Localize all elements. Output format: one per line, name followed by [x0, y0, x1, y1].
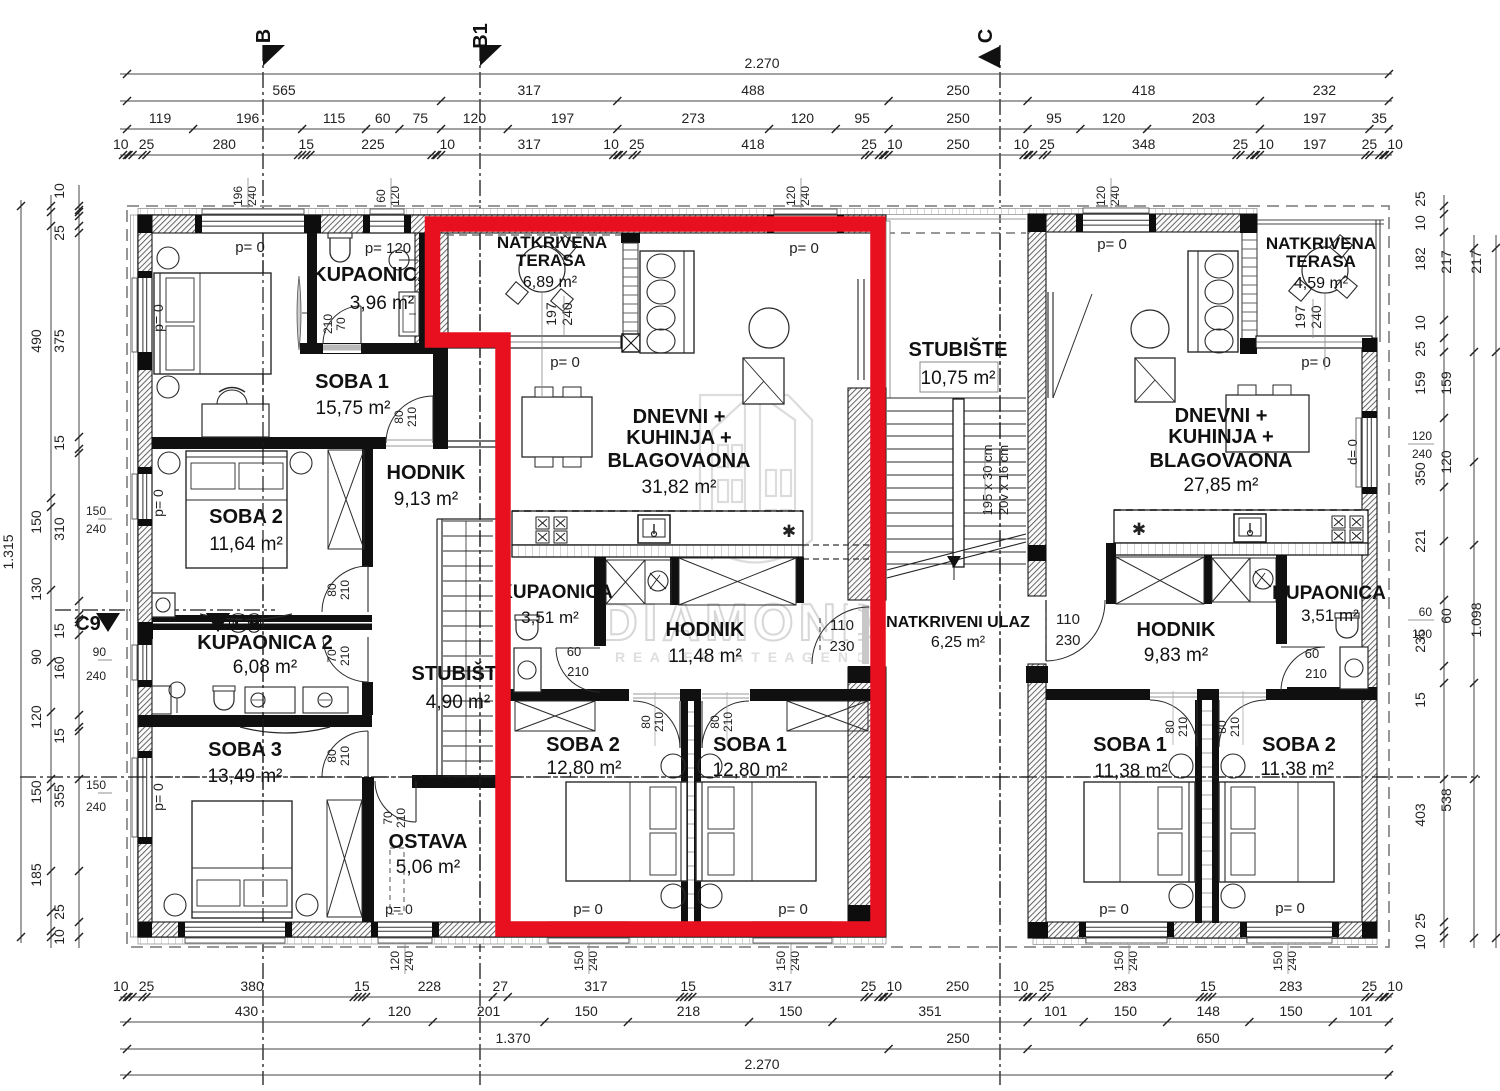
- svg-text:210: 210: [721, 712, 735, 732]
- svg-text:120: 120: [388, 1003, 412, 1019]
- svg-text:240: 240: [245, 186, 259, 206]
- svg-text:6,25 m²: 6,25 m²: [931, 634, 986, 651]
- svg-text:NATKRIVENI ULAZ: NATKRIVENI ULAZ: [886, 614, 1030, 631]
- svg-text:1.315: 1.315: [0, 534, 16, 569]
- svg-text:10: 10: [113, 978, 129, 994]
- svg-text:197: 197: [1303, 136, 1327, 152]
- svg-text:210: 210: [1228, 717, 1242, 737]
- svg-text:p= 0: p= 0: [550, 354, 580, 371]
- svg-text:95: 95: [1046, 110, 1062, 126]
- svg-text:120: 120: [1412, 429, 1432, 443]
- svg-text:196: 196: [236, 110, 260, 126]
- svg-text:10: 10: [1387, 978, 1403, 994]
- svg-text:25: 25: [1233, 136, 1249, 152]
- svg-text:230: 230: [829, 638, 854, 655]
- svg-text:150: 150: [774, 951, 788, 971]
- svg-text:240: 240: [86, 669, 106, 683]
- svg-text:15: 15: [298, 136, 314, 152]
- svg-text:217: 217: [1468, 250, 1484, 274]
- svg-text:240: 240: [1108, 186, 1122, 206]
- svg-text:10: 10: [1412, 315, 1428, 331]
- svg-text:3,51 m²: 3,51 m²: [521, 608, 579, 627]
- svg-text:15: 15: [1412, 692, 1428, 708]
- svg-text:150: 150: [28, 780, 44, 804]
- svg-text:10: 10: [886, 978, 902, 994]
- svg-text:210: 210: [405, 407, 419, 427]
- svg-text:15: 15: [354, 978, 370, 994]
- svg-text:SOBA 3: SOBA 3: [208, 739, 282, 761]
- svg-text:317: 317: [584, 978, 608, 994]
- svg-text:120: 120: [784, 186, 798, 206]
- svg-text:10: 10: [113, 136, 129, 152]
- svg-text:130: 130: [28, 577, 44, 601]
- svg-text:p= 0: p= 0: [1099, 901, 1129, 918]
- svg-text:240: 240: [86, 522, 106, 536]
- svg-text:195 x 30 cm: 195 x 30 cm: [980, 445, 995, 516]
- svg-text:283: 283: [1113, 978, 1137, 994]
- svg-text:10: 10: [440, 136, 456, 152]
- svg-text:10: 10: [887, 136, 903, 152]
- svg-text:240: 240: [798, 186, 812, 206]
- svg-text:119: 119: [149, 110, 172, 126]
- svg-text:70: 70: [334, 317, 348, 331]
- svg-text:150: 150: [1271, 951, 1285, 971]
- svg-text:10: 10: [51, 183, 67, 199]
- svg-text:27: 27: [492, 978, 508, 994]
- svg-text:KUHINJA +: KUHINJA +: [1168, 426, 1273, 448]
- svg-text:228: 228: [418, 978, 442, 994]
- svg-text:p= 0: p= 0: [150, 783, 166, 811]
- svg-text:197: 197: [1303, 110, 1327, 126]
- svg-text:210: 210: [338, 646, 352, 666]
- svg-text:2.270: 2.270: [744, 1056, 779, 1072]
- svg-text:210: 210: [652, 712, 666, 732]
- svg-text:80: 80: [325, 583, 339, 597]
- svg-text:6,89 m²: 6,89 m²: [523, 274, 578, 291]
- svg-text:75: 75: [412, 110, 428, 126]
- svg-text:SOBA 2: SOBA 2: [209, 506, 283, 528]
- svg-text:KUPAONICA: KUPAONICA: [312, 264, 432, 286]
- svg-text:80: 80: [325, 749, 339, 763]
- svg-text:15: 15: [51, 623, 67, 639]
- svg-text:3,96 m²: 3,96 m²: [350, 293, 414, 314]
- svg-text:240: 240: [559, 302, 575, 326]
- svg-text:283: 283: [1279, 978, 1303, 994]
- svg-text:120: 120: [28, 705, 44, 729]
- svg-text:120: 120: [388, 186, 402, 206]
- svg-text:418: 418: [1132, 82, 1156, 98]
- svg-text:355: 355: [51, 784, 67, 808]
- svg-text:350: 350: [1412, 462, 1428, 486]
- svg-text:150: 150: [86, 778, 106, 792]
- svg-text:60: 60: [1438, 608, 1454, 624]
- svg-text:25: 25: [1362, 978, 1378, 994]
- svg-text:p= 0: p= 0: [573, 901, 603, 918]
- svg-text:B1: B1: [470, 23, 492, 49]
- svg-text:120: 120: [791, 110, 815, 126]
- svg-text:25: 25: [51, 225, 67, 241]
- svg-text:490: 490: [28, 329, 44, 353]
- svg-text:SOBA 1: SOBA 1: [315, 371, 389, 393]
- svg-text:150: 150: [1279, 1003, 1303, 1019]
- svg-text:KUPAONICA: KUPAONICA: [1272, 583, 1386, 604]
- svg-text:10: 10: [603, 136, 619, 152]
- svg-text:240: 240: [1126, 951, 1140, 971]
- svg-text:210: 210: [394, 808, 408, 828]
- svg-text:150: 150: [1112, 951, 1126, 971]
- svg-text:317: 317: [769, 978, 793, 994]
- svg-text:25: 25: [1412, 341, 1428, 357]
- svg-text:p= 0: p= 0: [789, 240, 819, 257]
- svg-text:430: 430: [235, 1003, 259, 1019]
- svg-text:10: 10: [51, 929, 67, 945]
- svg-text:11,38 m²: 11,38 m²: [1094, 761, 1168, 782]
- svg-text:NATKRIVENA: NATKRIVENA: [497, 233, 607, 252]
- svg-text:250: 250: [946, 110, 970, 126]
- svg-text:15: 15: [1200, 978, 1216, 994]
- svg-text:240: 240: [402, 951, 416, 971]
- svg-text:STUBIŠTE: STUBIŠTE: [909, 337, 1008, 361]
- svg-text:d= 0: d= 0: [1345, 439, 1360, 465]
- svg-text:185: 185: [28, 863, 44, 887]
- svg-text:159: 159: [1438, 371, 1454, 395]
- svg-text:15: 15: [51, 435, 67, 451]
- svg-text:1.098: 1.098: [1468, 602, 1484, 637]
- svg-text:KUPAONICA 2: KUPAONICA 2: [197, 632, 333, 654]
- svg-text:217: 217: [1438, 250, 1454, 274]
- svg-text:TERASA: TERASA: [516, 251, 586, 270]
- svg-text:25: 25: [1039, 978, 1055, 994]
- svg-text:210: 210: [321, 314, 335, 334]
- svg-text:25: 25: [139, 978, 155, 994]
- svg-text:60: 60: [1305, 646, 1319, 661]
- svg-text:150: 150: [86, 504, 106, 518]
- svg-text:240: 240: [1412, 447, 1432, 461]
- svg-text:201: 201: [477, 1003, 501, 1019]
- svg-text:25: 25: [861, 136, 877, 152]
- svg-text:120: 120: [388, 951, 402, 971]
- svg-text:SOBA 2: SOBA 2: [546, 734, 620, 756]
- svg-text:25: 25: [861, 978, 877, 994]
- svg-text:✱: ✱: [1132, 520, 1146, 539]
- svg-text:210: 210: [1305, 666, 1327, 681]
- svg-text:20v x 16 cm: 20v x 16 cm: [996, 445, 1011, 515]
- svg-text:p= 0: p= 0: [150, 304, 166, 332]
- svg-text:197: 197: [551, 110, 575, 126]
- svg-text:p= 0: p= 0: [778, 901, 808, 918]
- svg-text:250: 250: [946, 82, 970, 98]
- svg-text:4,59 m²: 4,59 m²: [1294, 275, 1349, 292]
- svg-text:5,06 m²: 5,06 m²: [396, 857, 460, 878]
- svg-text:310: 310: [51, 517, 67, 541]
- svg-text:110: 110: [1056, 611, 1080, 628]
- svg-text:10: 10: [1412, 215, 1428, 231]
- svg-text:OSTAVA: OSTAVA: [389, 831, 468, 853]
- svg-text:60: 60: [567, 644, 581, 659]
- svg-text:80: 80: [392, 410, 406, 424]
- svg-text:240: 240: [1285, 951, 1299, 971]
- svg-text:197: 197: [543, 302, 559, 326]
- svg-text:240: 240: [1308, 305, 1324, 329]
- svg-text:10: 10: [1387, 136, 1403, 152]
- svg-text:HODNIK: HODNIK: [387, 462, 466, 484]
- svg-text:221: 221: [1412, 529, 1428, 553]
- svg-text:210: 210: [567, 664, 589, 679]
- svg-text:210: 210: [338, 580, 352, 600]
- svg-text:101: 101: [1349, 1003, 1373, 1019]
- svg-text:210: 210: [338, 746, 352, 766]
- svg-text:565: 565: [272, 82, 296, 98]
- svg-text:225: 225: [361, 136, 385, 152]
- svg-text:240: 240: [586, 951, 600, 971]
- svg-text:196: 196: [231, 186, 245, 206]
- svg-text:DNEVNI +: DNEVNI +: [1175, 405, 1268, 427]
- svg-text:110: 110: [830, 617, 854, 634]
- svg-text:p= 0: p= 0: [1301, 354, 1331, 371]
- svg-text:80: 80: [639, 715, 653, 729]
- svg-text:HODNIK: HODNIK: [1137, 619, 1216, 641]
- svg-text:159: 159: [1412, 371, 1428, 395]
- svg-text:230: 230: [1055, 632, 1080, 649]
- svg-text:232: 232: [1313, 82, 1337, 98]
- svg-text:418: 418: [741, 136, 765, 152]
- svg-text:150: 150: [1114, 1003, 1138, 1019]
- svg-text:25: 25: [1039, 136, 1055, 152]
- svg-text:60: 60: [1419, 605, 1433, 619]
- svg-text:10,75 m²: 10,75 m²: [921, 368, 996, 389]
- svg-text:p= 0: p= 0: [1097, 236, 1127, 253]
- svg-text:BLAGOVAONA: BLAGOVAONA: [608, 450, 751, 472]
- svg-text:25: 25: [1412, 191, 1428, 207]
- svg-text:80: 80: [1215, 720, 1229, 734]
- svg-text:10: 10: [1013, 978, 1029, 994]
- svg-text:150: 150: [574, 1003, 598, 1019]
- svg-text:HODNIK: HODNIK: [666, 619, 745, 641]
- svg-text:KUHINJA +: KUHINJA +: [626, 427, 731, 449]
- svg-text:BLAGOVAONA: BLAGOVAONA: [1150, 450, 1293, 472]
- svg-text:11,48 m²: 11,48 m²: [668, 646, 742, 667]
- svg-text:15: 15: [51, 728, 67, 744]
- svg-text:10: 10: [1258, 136, 1274, 152]
- svg-text:240: 240: [788, 951, 802, 971]
- svg-text:✱: ✱: [782, 522, 796, 541]
- svg-text:31,82 m²: 31,82 m²: [642, 477, 717, 498]
- svg-text:90: 90: [28, 649, 44, 665]
- svg-text:250: 250: [946, 978, 970, 994]
- svg-text:90: 90: [93, 645, 107, 659]
- svg-text:25: 25: [51, 904, 67, 920]
- svg-text:p= 0: p= 0: [385, 901, 413, 917]
- svg-text:280: 280: [213, 136, 237, 152]
- svg-text:NATKRIVENA: NATKRIVENA: [1266, 234, 1376, 253]
- svg-text:15,75 m²: 15,75 m²: [316, 398, 391, 419]
- svg-text:25: 25: [1412, 913, 1428, 929]
- svg-text:25: 25: [139, 136, 155, 152]
- svg-text:375: 375: [51, 329, 67, 353]
- svg-text:25: 25: [629, 136, 645, 152]
- svg-text:12,80 m²: 12,80 m²: [547, 758, 622, 779]
- svg-text:9,13 m²: 9,13 m²: [394, 489, 458, 510]
- svg-text:10: 10: [1014, 136, 1030, 152]
- svg-text:403: 403: [1412, 803, 1428, 827]
- svg-text:12,80 m²: 12,80 m²: [713, 760, 788, 781]
- svg-text:150: 150: [779, 1003, 803, 1019]
- svg-text:SOBA 2: SOBA 2: [1262, 734, 1336, 756]
- svg-text:317: 317: [518, 82, 542, 98]
- svg-text:351: 351: [918, 1003, 942, 1019]
- svg-text:2.270: 2.270: [744, 55, 779, 71]
- svg-text:273: 273: [682, 110, 706, 126]
- svg-text:120: 120: [1102, 110, 1126, 126]
- svg-text:210: 210: [1176, 717, 1190, 737]
- svg-text:TERASA: TERASA: [1286, 252, 1356, 271]
- svg-text:150: 150: [572, 951, 586, 971]
- svg-text:10: 10: [1412, 934, 1428, 950]
- svg-text:120: 120: [1438, 450, 1454, 474]
- svg-text:p= 0: p= 0: [150, 489, 166, 517]
- svg-text:380: 380: [240, 978, 264, 994]
- svg-text:35: 35: [1371, 110, 1387, 126]
- svg-text:p= 0: p= 0: [235, 239, 265, 256]
- svg-text:60: 60: [374, 189, 388, 203]
- svg-text:15: 15: [680, 978, 696, 994]
- svg-text:3,51 m²: 3,51 m²: [1301, 606, 1359, 625]
- svg-text:101: 101: [1044, 1003, 1068, 1019]
- svg-text:25: 25: [1362, 136, 1378, 152]
- svg-text:120: 120: [1412, 627, 1432, 641]
- svg-text:SOBA 1: SOBA 1: [713, 734, 787, 756]
- svg-text:C: C: [975, 29, 997, 43]
- svg-text:150: 150: [28, 510, 44, 534]
- svg-text:203: 203: [1192, 110, 1216, 126]
- svg-text:SOBA 1: SOBA 1: [1093, 734, 1167, 756]
- svg-text:120: 120: [463, 110, 487, 126]
- svg-text:250: 250: [946, 136, 970, 152]
- svg-text:1.370: 1.370: [495, 1030, 530, 1046]
- svg-text:182: 182: [1412, 247, 1428, 271]
- svg-text:115: 115: [323, 110, 346, 126]
- svg-text:148: 148: [1197, 1003, 1221, 1019]
- svg-text:70: 70: [381, 811, 395, 825]
- svg-text:6,08 m²: 6,08 m²: [233, 657, 297, 678]
- svg-text:9,83 m²: 9,83 m²: [1144, 645, 1208, 666]
- svg-text:317: 317: [518, 136, 542, 152]
- svg-text:120: 120: [1094, 186, 1108, 206]
- svg-text:11,64 m²: 11,64 m²: [209, 534, 283, 555]
- svg-text:KUPAONICA: KUPAONICA: [499, 582, 613, 603]
- svg-text:27,85 m²: 27,85 m²: [1184, 475, 1259, 496]
- svg-text:488: 488: [741, 82, 765, 98]
- svg-text:240: 240: [86, 800, 106, 814]
- svg-text:218: 218: [677, 1003, 701, 1019]
- svg-text:348: 348: [1132, 136, 1156, 152]
- svg-text:B: B: [253, 29, 275, 43]
- svg-text:250: 250: [946, 1030, 970, 1046]
- svg-text:95: 95: [854, 110, 870, 126]
- svg-text:p= 120: p= 120: [365, 240, 411, 257]
- svg-text:p= 0: p= 0: [1275, 900, 1305, 917]
- svg-text:DNEVNI +: DNEVNI +: [633, 406, 726, 428]
- svg-text:80: 80: [708, 715, 722, 729]
- svg-text:650: 650: [1196, 1030, 1220, 1046]
- svg-text:197: 197: [1292, 305, 1308, 329]
- svg-text:60: 60: [375, 110, 391, 126]
- svg-text:538: 538: [1438, 788, 1454, 812]
- svg-text:160: 160: [51, 656, 67, 680]
- svg-text:80: 80: [1163, 720, 1177, 734]
